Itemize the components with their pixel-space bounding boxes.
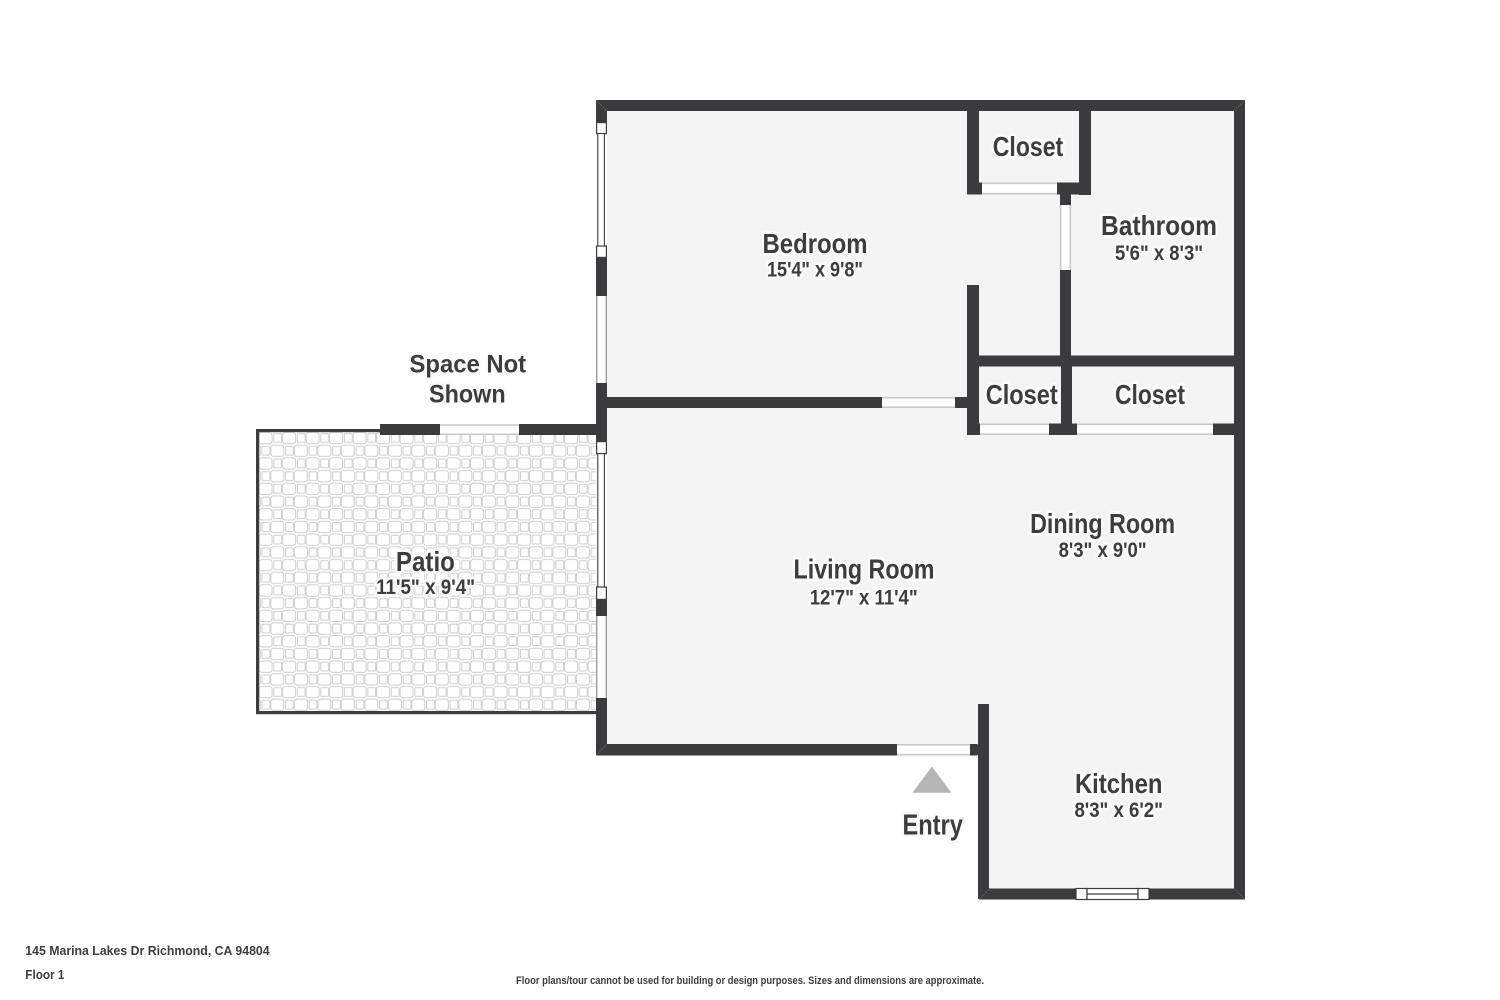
svg-text:Kitchen: Kitchen bbox=[1075, 768, 1163, 799]
svg-text:Closet: Closet bbox=[986, 379, 1058, 410]
svg-text:Patio: Patio bbox=[396, 546, 455, 577]
svg-text:Bedroom: Bedroom bbox=[763, 228, 868, 259]
svg-text:Shown: Shown bbox=[429, 381, 506, 409]
svg-text:11'5" x 9'4": 11'5" x 9'4" bbox=[376, 576, 475, 599]
svg-text:Floor plans/tour cannot be use: Floor plans/tour cannot be used for buil… bbox=[516, 975, 984, 987]
svg-text:Living Room: Living Room bbox=[794, 553, 935, 584]
svg-text:Floor 1: Floor 1 bbox=[25, 968, 64, 982]
svg-text:Space Not: Space Not bbox=[410, 351, 527, 379]
svg-text:15'4" x 9'8": 15'4" x 9'8" bbox=[767, 258, 863, 281]
svg-text:Dining Room: Dining Room bbox=[1030, 508, 1175, 539]
svg-text:8'3" x 6'2": 8'3" x 6'2" bbox=[1074, 799, 1163, 822]
svg-text:12'7" x 11'4": 12'7" x 11'4" bbox=[810, 587, 918, 610]
svg-text:Closet: Closet bbox=[1115, 379, 1185, 410]
svg-text:145 Marina Lakes Dr Richmond,: 145 Marina Lakes Dr Richmond, CA 94804 bbox=[25, 944, 269, 958]
svg-text:8'3" x 9'0": 8'3" x 9'0" bbox=[1059, 539, 1147, 562]
svg-text:5'6" x 8'3": 5'6" x 8'3" bbox=[1115, 242, 1203, 265]
svg-text:Bathroom: Bathroom bbox=[1101, 210, 1217, 241]
svg-text:Closet: Closet bbox=[993, 131, 1063, 162]
svg-text:Entry: Entry bbox=[903, 809, 963, 841]
